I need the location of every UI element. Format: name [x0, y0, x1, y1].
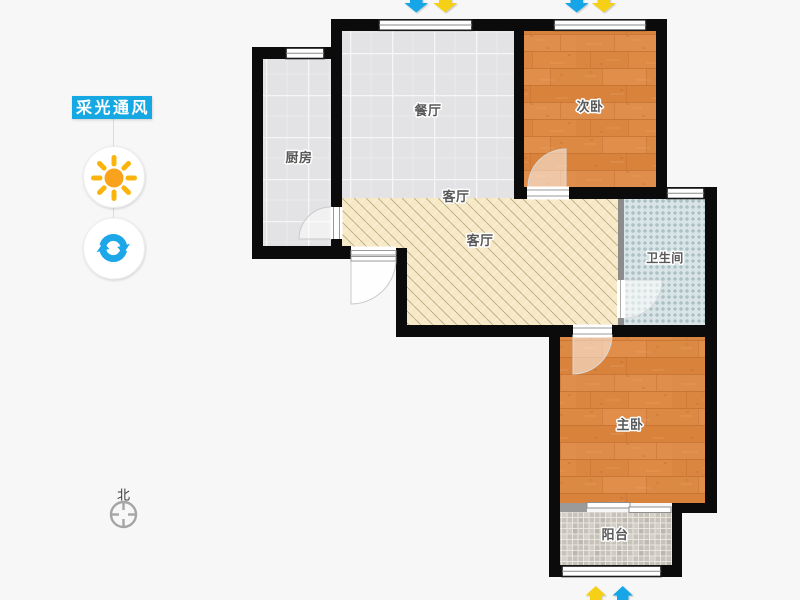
svg-text:北: 北: [117, 488, 130, 503]
svg-text:餐厅: 餐厅: [413, 103, 441, 118]
svg-text:次卧: 次卧: [576, 99, 603, 114]
svg-text:客厅: 客厅: [466, 233, 493, 248]
svg-text:客厅: 客厅: [442, 189, 469, 204]
svg-text:厨房: 厨房: [285, 150, 312, 165]
svg-text:卫生间: 卫生间: [646, 250, 684, 265]
svg-text:采光通风: 采光通风: [75, 98, 150, 117]
svg-text:主卧: 主卧: [616, 417, 643, 432]
svg-text:阳台: 阳台: [601, 527, 628, 542]
